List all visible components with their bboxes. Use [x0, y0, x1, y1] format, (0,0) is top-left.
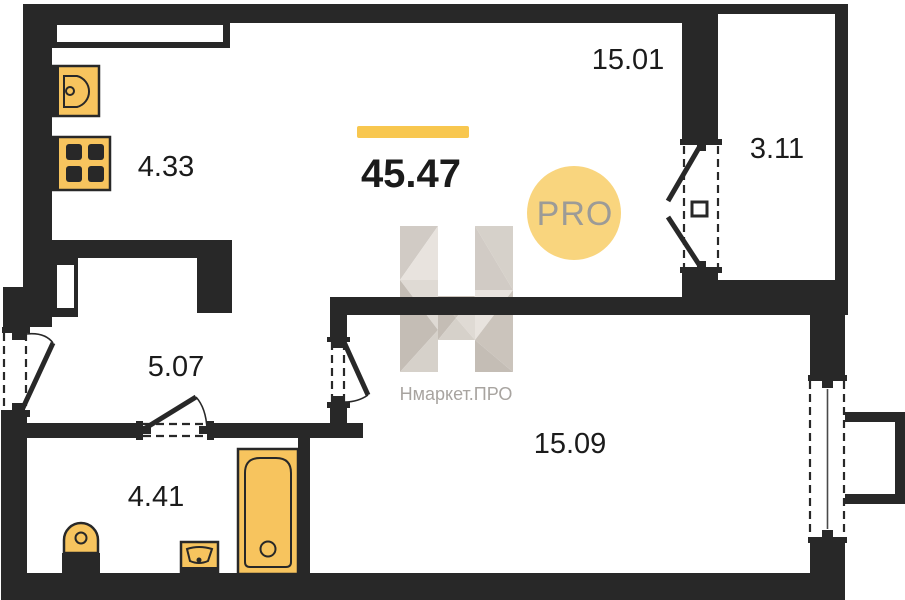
bedroom-door-leaf: [344, 342, 368, 395]
total-area-label: 45.47: [361, 152, 461, 196]
stove: [53, 137, 110, 190]
entrance-door: [4, 333, 53, 410]
exterior-balcony-outline: [845, 412, 905, 504]
bedroom-window: [810, 381, 844, 537]
bathtub: [238, 449, 298, 574]
hallway-area-label: 5.07: [148, 351, 204, 383]
pro-badge-text: PRO: [537, 195, 614, 233]
living-room-area-label: 15.01: [592, 44, 665, 76]
floorplan-image: Нмаркет.ПРО PRO: [0, 0, 905, 600]
balcony-french-door: [668, 146, 718, 267]
bedroom-door: [332, 342, 368, 402]
toilet: [62, 523, 100, 575]
kitchen-sink: [53, 66, 99, 116]
pro-badge: PRO: [527, 166, 621, 260]
vent-shaft-hall: [57, 265, 74, 308]
kitchen-area-label: 4.33: [138, 151, 194, 183]
bedroom-area-label: 15.09: [534, 428, 607, 460]
total-area-accent-bar: [357, 126, 469, 138]
balcony-area-label: 3.11: [750, 133, 804, 165]
brand-watermark-text: Нмаркет.ПРО: [400, 384, 513, 404]
vent-shaft-top: [57, 25, 223, 42]
floorplan-svg: Нмаркет.ПРО PRO: [0, 0, 905, 600]
bathroom-area-label: 4.41: [128, 481, 184, 513]
balcony-door-handle: [692, 202, 707, 216]
total-area: 45.47: [357, 126, 469, 196]
bathroom-sink: [181, 542, 218, 573]
